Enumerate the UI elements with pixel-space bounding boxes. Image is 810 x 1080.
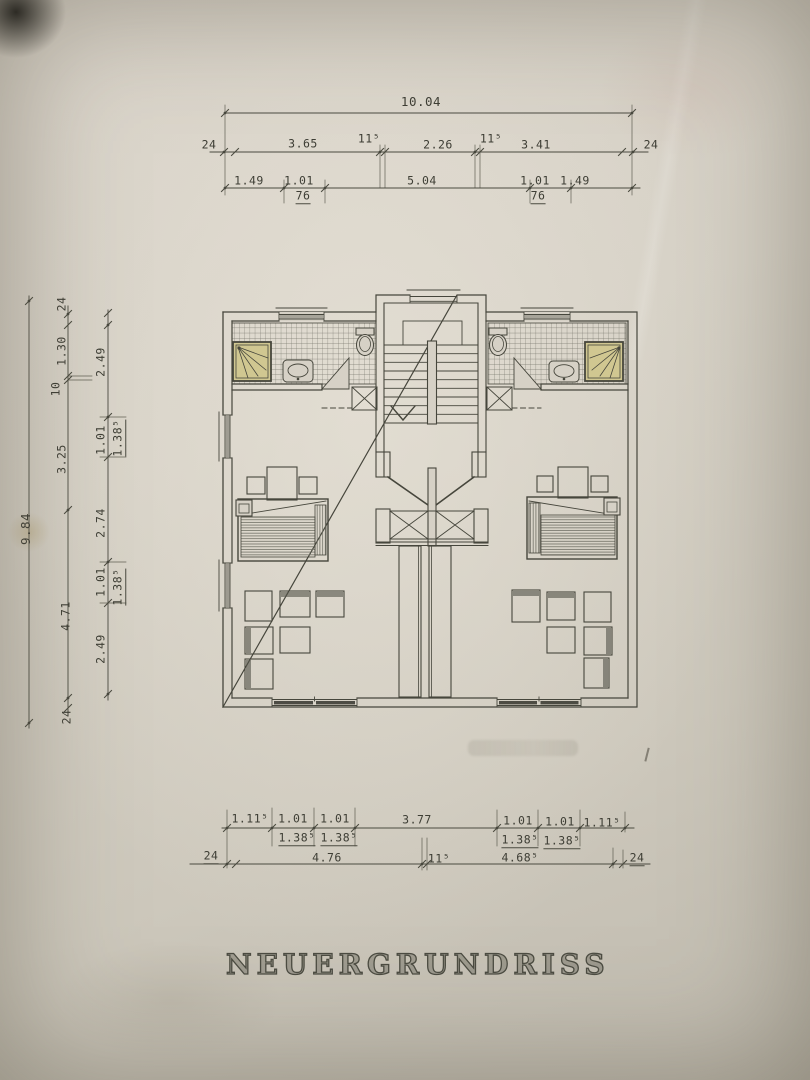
dim-label: 1.11⁵: [231, 813, 268, 825]
dim-label: 11⁵: [480, 133, 502, 145]
drawing-title: NEUER GRUNDRISS: [226, 948, 582, 981]
dim-label: 1.11⁵: [583, 817, 620, 829]
dim-label: 11⁵: [358, 133, 380, 145]
dim-label: 24: [56, 297, 68, 312]
dim-label: 24: [644, 139, 659, 151]
dim-label: 3.77: [402, 814, 432, 826]
dim-label: 1.49: [560, 175, 590, 187]
dim-label: 1.01: [95, 425, 107, 455]
cabinet-squares: [512, 590, 612, 688]
dim-label-overall-width: 10.04: [401, 96, 441, 109]
shower: [233, 342, 271, 381]
flue-box: [352, 387, 377, 410]
floor-plan-photo: 10.04 24 3.65 11⁵ 2.26 11⁵ 3.41 24 1.49 …: [0, 0, 810, 1080]
right-room-furniture: [512, 467, 620, 688]
dim-label: 1.01: [95, 567, 107, 597]
party-wall: [399, 546, 451, 697]
dim-label-opening: 1.38⁵: [320, 832, 357, 846]
dim-label: 1.01: [503, 815, 533, 827]
desk-and-chairs: [247, 467, 317, 500]
dim-label: 3.41: [521, 139, 551, 151]
dim-label: 24: [204, 850, 219, 864]
stairwell: [376, 303, 486, 546]
dark-corner: [0, 0, 66, 58]
sink: [283, 360, 313, 382]
dim-label: 3.25: [56, 444, 68, 474]
dim-label: 1.01: [320, 813, 350, 825]
dim-label: 10: [50, 382, 62, 397]
dim-label: 24: [630, 852, 645, 866]
title-word-2: GRUNDRISS: [367, 948, 610, 981]
pillow: [315, 505, 326, 555]
dim-label-overall-height: 9.84: [20, 513, 33, 545]
dim-label: 2.49: [95, 347, 107, 377]
floor-plan-drawing: [0, 0, 810, 1080]
sink: [549, 361, 579, 382]
dim-label: 4.68⁵: [501, 852, 538, 864]
dim-label: 2.26: [423, 139, 453, 151]
dim-label: 1.49: [234, 175, 264, 187]
pillow: [529, 503, 540, 553]
dim-label: 1.01: [278, 813, 308, 825]
dim-label: 5.04: [407, 175, 437, 187]
dim-label-door-width: 76: [296, 190, 311, 204]
dim-label-opening: 1.38⁵: [543, 835, 580, 849]
nightstand: [604, 498, 620, 515]
dim-label: 4.71: [60, 601, 72, 631]
left-bathroom: [232, 323, 377, 410]
dim-label: 4.76: [312, 852, 342, 864]
cabinet-squares: [245, 591, 344, 689]
shower-drain: [237, 346, 240, 349]
dimension-lines: [26, 105, 651, 870]
dim-label-opening: 1.38⁵: [501, 834, 538, 848]
dim-label: 24: [61, 710, 73, 725]
toilet: [356, 328, 374, 356]
dim-label: 1.01: [545, 816, 575, 828]
dim-label: 3.65: [288, 138, 318, 150]
dim-label: 1.01: [520, 175, 550, 187]
dim-label: 24: [202, 139, 217, 151]
dim-label-opening: 1.38⁵: [112, 419, 126, 456]
flue-box: [487, 387, 512, 410]
shower-drain: [617, 346, 620, 349]
dim-label: 2.74: [95, 508, 107, 538]
right-bathroom: [487, 323, 628, 410]
dim-label-door-width: 76: [531, 190, 546, 204]
stair-direction-arrow: [391, 406, 415, 420]
dim-label: 1.30: [56, 336, 68, 366]
toilet: [489, 328, 507, 356]
nightstand: [236, 500, 252, 516]
dim-label: 11⁵: [428, 853, 450, 865]
desk-and-chairs: [537, 467, 608, 498]
title-word-1: NEUER: [226, 948, 367, 981]
dim-label: 2.49: [95, 634, 107, 664]
dim-label: 1.01: [284, 175, 314, 187]
dim-label-opening: 1.38⁵: [112, 568, 126, 605]
dim-label-opening: 1.38⁵: [278, 832, 315, 846]
shower: [585, 342, 623, 381]
